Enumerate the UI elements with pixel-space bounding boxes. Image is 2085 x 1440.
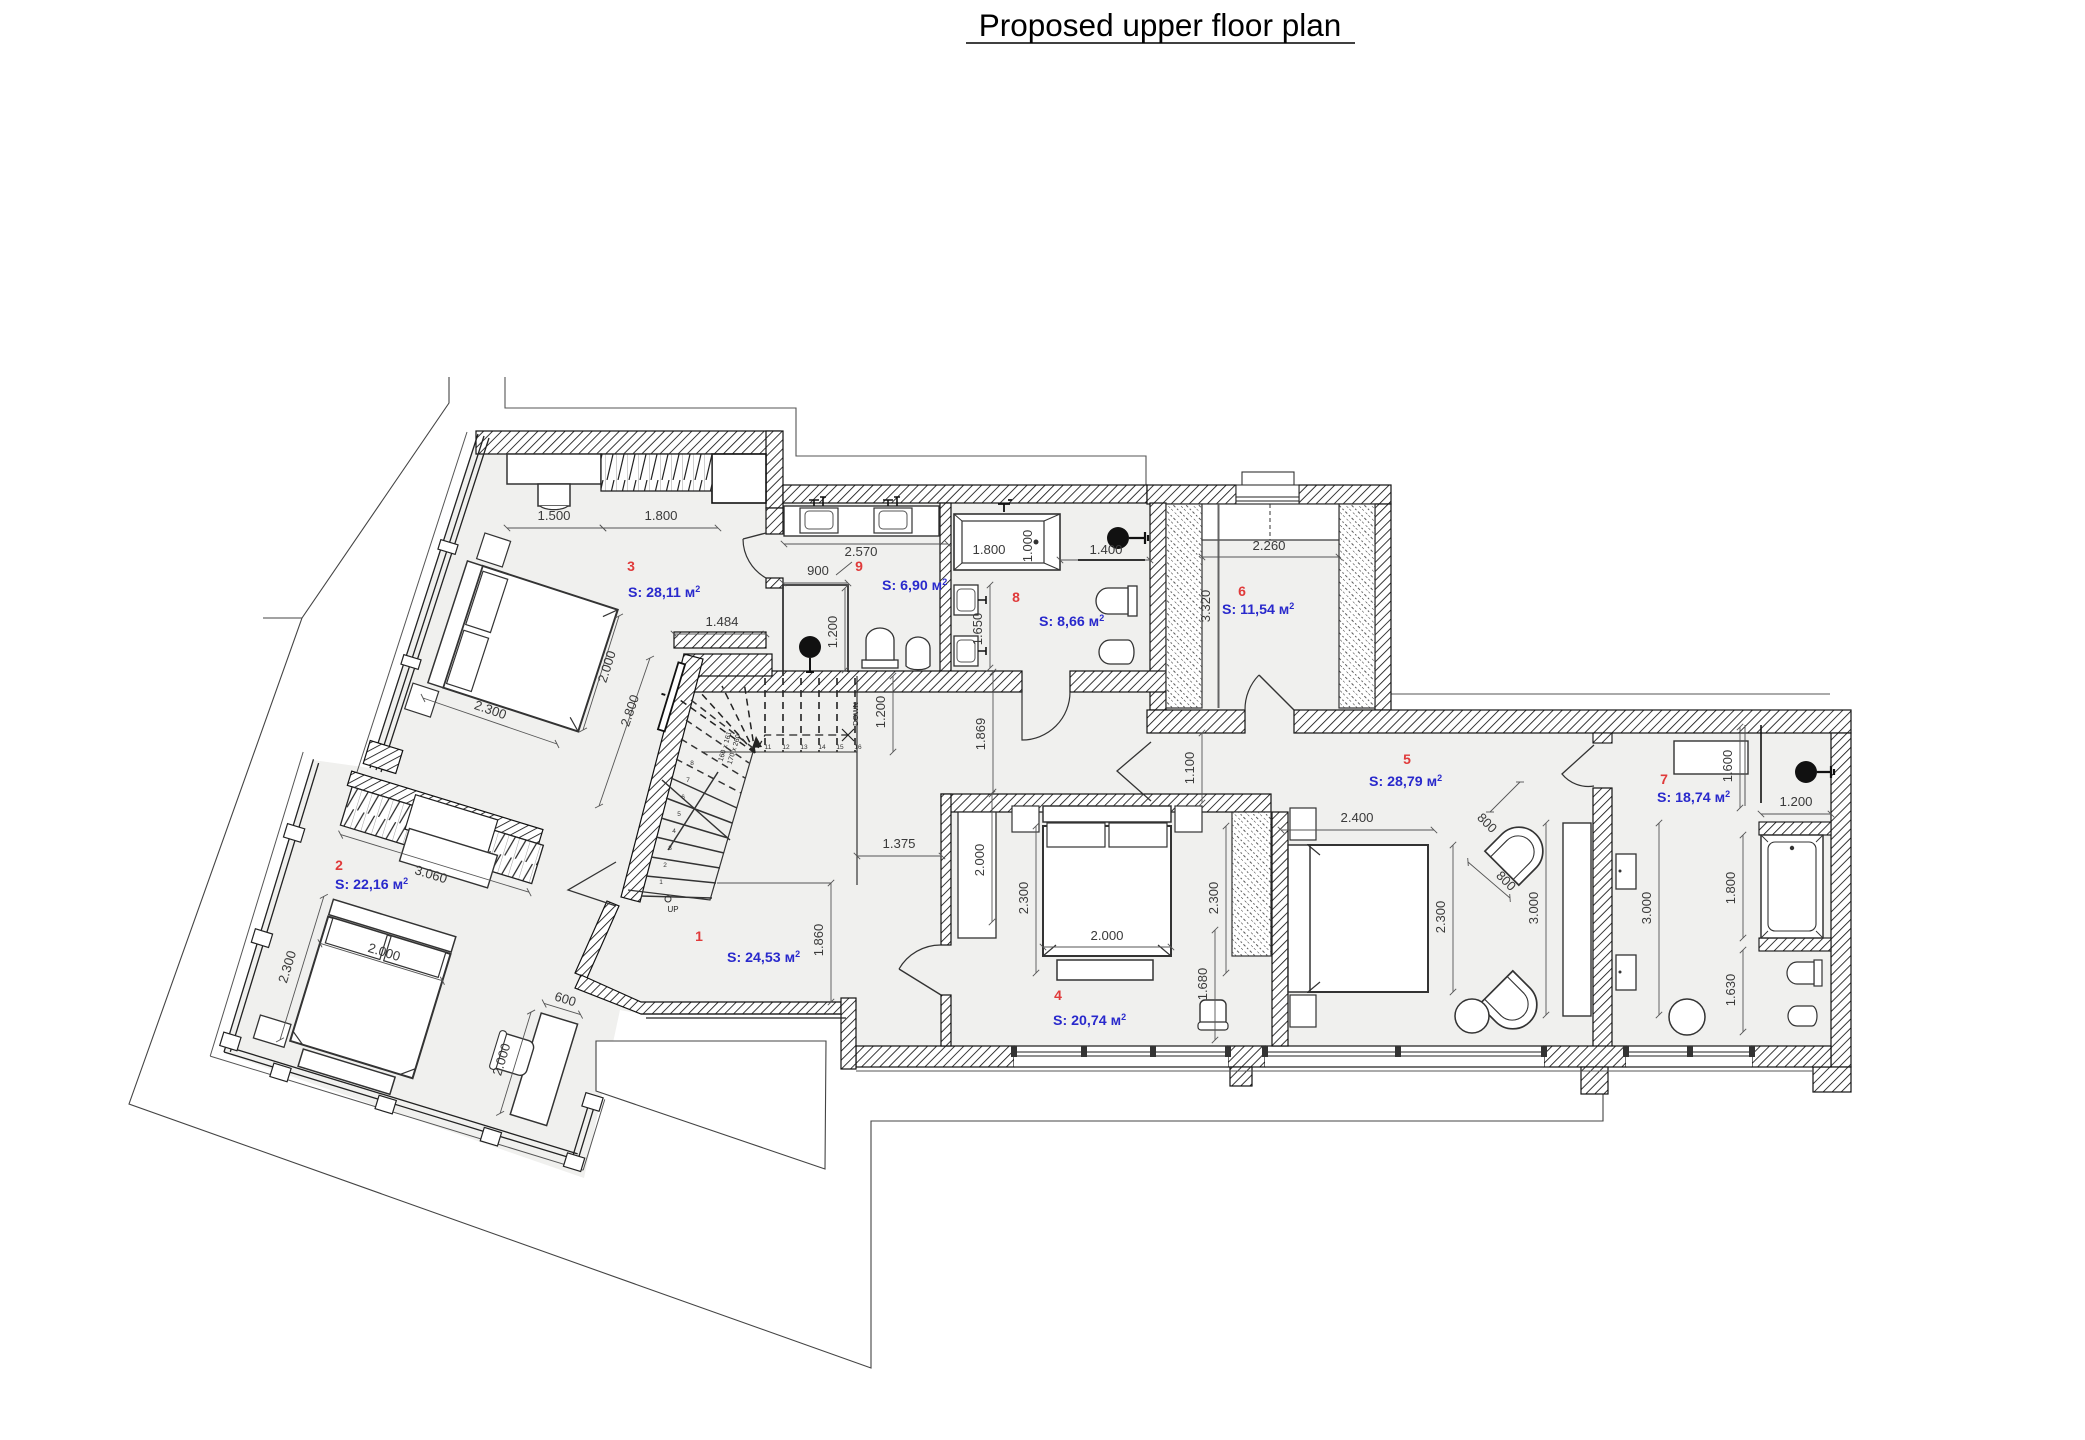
svg-text:11: 11 [765, 744, 772, 751]
svg-text:1.000: 1.000 [1020, 530, 1035, 563]
svg-text:15: 15 [836, 744, 844, 751]
svg-text:DOWN: DOWN [851, 702, 860, 726]
svg-text:1.375: 1.375 [882, 836, 915, 851]
svg-text:1.400: 1.400 [1089, 542, 1122, 557]
svg-text:2.000: 2.000 [1090, 928, 1123, 943]
svg-text:4: 4 [672, 828, 676, 835]
svg-text:7: 7 [1660, 771, 1668, 787]
svg-text:2.300: 2.300 [1016, 882, 1031, 915]
svg-text:6: 6 [681, 794, 685, 801]
svg-text:8: 8 [690, 760, 694, 767]
svg-text:3.320: 3.320 [1198, 590, 1213, 623]
svg-text:2: 2 [663, 862, 667, 869]
svg-text:1.630: 1.630 [1723, 974, 1738, 1007]
svg-text:6: 6 [1238, 583, 1246, 599]
svg-text:1.200: 1.200 [1779, 794, 1812, 809]
svg-text:1.100: 1.100 [1182, 752, 1197, 785]
svg-text:1.200: 1.200 [873, 696, 888, 729]
svg-text:1.800: 1.800 [644, 508, 677, 523]
svg-text:2.260: 2.260 [1252, 538, 1285, 553]
svg-text:1: 1 [695, 928, 703, 944]
svg-text:2.300: 2.300 [1433, 901, 1448, 934]
svg-text:900: 900 [807, 563, 829, 578]
svg-text:1.860: 1.860 [811, 924, 826, 957]
svg-text:5: 5 [677, 811, 681, 818]
svg-text:14: 14 [818, 744, 826, 751]
svg-text:S: 20,74 м2: S: 20,74 м2 [1053, 1012, 1126, 1029]
svg-text:1.650: 1.650 [970, 613, 985, 646]
svg-text:1.800: 1.800 [1723, 872, 1738, 905]
svg-text:9: 9 [855, 558, 863, 574]
svg-text:1.680: 1.680 [1195, 968, 1210, 1001]
svg-text:3.000: 3.000 [1639, 892, 1654, 925]
svg-text:3: 3 [627, 558, 635, 574]
svg-text:S: 22,16 м2: S: 22,16 м2 [335, 876, 408, 893]
svg-text:1.200: 1.200 [825, 616, 840, 649]
svg-text:13: 13 [800, 744, 808, 751]
svg-text:3: 3 [668, 845, 672, 852]
svg-text:8: 8 [1012, 589, 1020, 605]
svg-text:S: 28,79 м2: S: 28,79 м2 [1369, 773, 1442, 790]
svg-text:S: 28,11 м2: S: 28,11 м2 [628, 584, 700, 601]
svg-text:2.300: 2.300 [1206, 882, 1221, 915]
svg-text:4: 4 [1054, 987, 1062, 1003]
svg-text:S: 11,54 м2: S: 11,54 м2 [1222, 601, 1294, 618]
svg-text:Proposed upper floor plan: Proposed upper floor plan [979, 7, 1342, 43]
svg-text:S: 6,90 м2: S: 6,90 м2 [882, 577, 947, 594]
svg-text:7: 7 [686, 777, 690, 784]
svg-text:1.484: 1.484 [705, 614, 738, 629]
svg-text:UP: UP [667, 905, 678, 914]
svg-text:S: 24,53 м2: S: 24,53 м2 [727, 949, 800, 966]
svg-text:12: 12 [782, 744, 790, 751]
svg-text:1: 1 [659, 879, 663, 886]
svg-text:S: 18,74 м2: S: 18,74 м2 [1657, 789, 1730, 806]
svg-text:5: 5 [1403, 751, 1411, 767]
svg-text:1.869: 1.869 [973, 718, 988, 751]
svg-text:2.000: 2.000 [972, 844, 987, 877]
svg-text:1.800: 1.800 [972, 542, 1005, 557]
svg-text:16: 16 [854, 744, 862, 751]
svg-text:3.000: 3.000 [1526, 892, 1541, 925]
svg-text:2.400: 2.400 [1340, 810, 1373, 825]
svg-text:2.570: 2.570 [844, 544, 877, 559]
svg-text:1.500: 1.500 [537, 508, 570, 523]
svg-text:1.600: 1.600 [1720, 750, 1735, 783]
svg-text:S: 8,66 м2: S: 8,66 м2 [1039, 613, 1104, 630]
svg-text:2: 2 [335, 857, 343, 873]
